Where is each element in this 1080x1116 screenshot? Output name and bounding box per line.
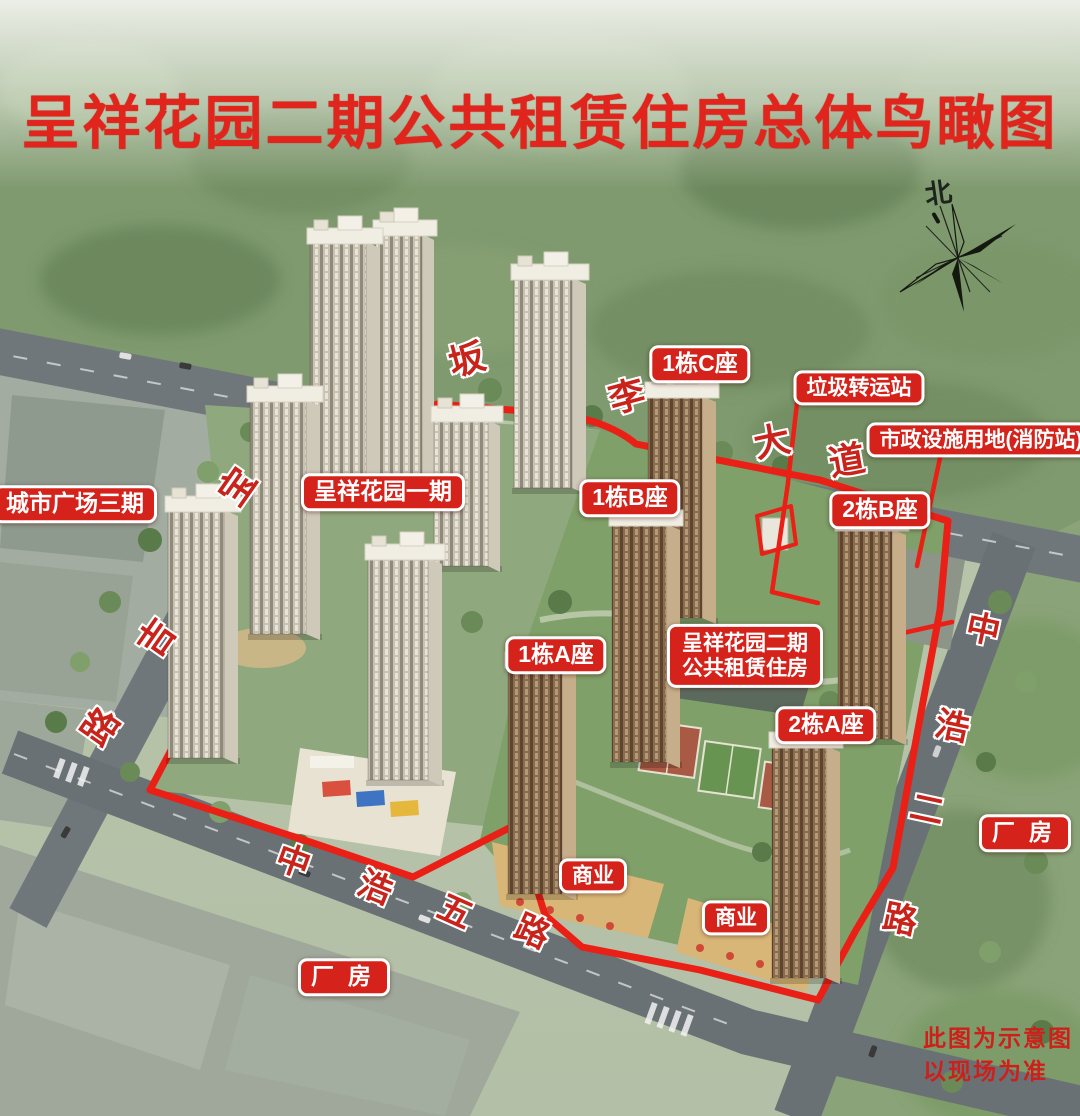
label-city-plaza-phase3: 城市广场三期	[0, 485, 157, 523]
label-phase2-line1: 呈祥花园二期	[682, 631, 808, 656]
road-banli-char: 大	[751, 421, 794, 464]
label-phase1: 呈祥花园一期	[301, 473, 465, 511]
label-commercial-east: 商业	[702, 900, 770, 935]
phase1-tower	[165, 484, 241, 764]
road-zhonghao2-char: 浩	[932, 707, 972, 747]
road-zhonghao2-char: 中	[963, 610, 1003, 650]
road-banli-char: 道	[826, 440, 868, 482]
page-title: 呈祥花园二期公共租赁住房总体鸟瞰图	[0, 76, 1080, 160]
label-building1-tower-c: 1栋C座	[649, 345, 750, 383]
label-trash-transfer-station: 垃圾转运站	[794, 370, 925, 405]
label-factory-southwest: 厂房	[298, 958, 390, 996]
road-zhonghao2-char: 二	[907, 790, 947, 830]
phase1-tower	[365, 532, 445, 786]
phase2-tower	[769, 720, 843, 984]
disclaimer-line1: 此图为示意图	[923, 1022, 1073, 1055]
label-factory-east: 厂房	[979, 814, 1071, 852]
factory-area-southwest	[0, 845, 520, 1116]
label-building1-tower-b: 1栋B座	[579, 479, 680, 517]
label-building2-tower-b: 2栋B座	[829, 491, 930, 529]
label-phase2-line2: 公共租赁住房	[682, 656, 808, 681]
phase1-tower	[373, 208, 437, 480]
phase1-tower	[511, 252, 589, 494]
birdseye-rendering-page: 呈祥花园二期公共租赁住房总体鸟瞰图 北 坂 李 大 道 宝 吉 路 中 浩 五 …	[0, 0, 1080, 1116]
label-building2-tower-a: 2栋A座	[775, 706, 876, 744]
label-commercial-west: 商业	[559, 858, 627, 893]
disclaimer-line2: 以现场为准	[923, 1055, 1073, 1088]
label-municipal-fire-station: 市政设施用地(消防站)	[867, 422, 1080, 457]
disclaimer-note: 此图为示意图 以现场为准	[923, 1022, 1073, 1089]
north-label: 北	[922, 170, 954, 212]
label-phase2-project: 呈祥花园二期 公共租赁住房	[667, 624, 823, 688]
label-building1-tower-a: 1栋A座	[505, 636, 606, 674]
road-zhonghao2-char: 路	[880, 900, 920, 940]
